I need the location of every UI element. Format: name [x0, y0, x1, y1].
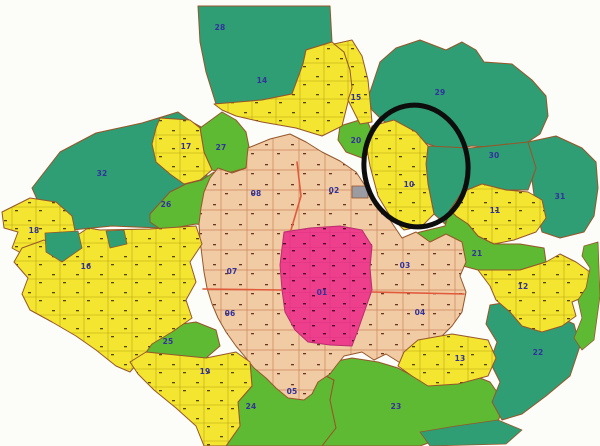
zone-label-11: 11	[490, 206, 501, 215]
zone-label-03: 03	[400, 261, 411, 270]
zone-label-08: 08	[251, 189, 262, 198]
zone-label-32: 32	[97, 169, 108, 178]
zone-label-12: 12	[518, 282, 529, 291]
zone-label-07: 07	[227, 267, 238, 276]
zone-label-14: 14	[257, 76, 268, 85]
zone-label-27: 27	[216, 143, 227, 152]
zone-label-20: 20	[351, 136, 362, 145]
zone-label-23: 23	[391, 402, 402, 411]
zone-label-10: 10	[404, 180, 415, 189]
zone-label-30: 30	[489, 151, 500, 160]
zone-label-17: 17	[181, 142, 192, 151]
zone-label-06: 06	[225, 309, 236, 318]
zone-label-04: 04	[415, 308, 426, 317]
zone-label-21: 21	[472, 249, 483, 258]
road-line	[203, 289, 281, 290]
zoning-map-figure: 3228293130262720252423222101141517181619…	[0, 0, 600, 446]
map-canvas: 3228293130262720252423222101141517181619…	[0, 0, 600, 446]
zone-label-19: 19	[200, 367, 211, 376]
zone-label-15: 15	[351, 93, 362, 102]
zone-01	[280, 226, 372, 346]
zone-label-05: 05	[287, 387, 298, 396]
zone-label-22: 22	[533, 348, 544, 357]
zone-label-31: 31	[555, 192, 566, 201]
zone-label-26: 26	[161, 200, 172, 209]
zone-label-29: 29	[435, 88, 446, 97]
zone-label-25: 25	[163, 337, 174, 346]
zone-label-28: 28	[215, 23, 226, 32]
zone-label-18: 18	[29, 226, 40, 235]
zone-label-24: 24	[246, 402, 257, 411]
zone-label-16: 16	[81, 262, 92, 271]
zone-label-01: 01	[317, 288, 328, 297]
zone-label-13: 13	[455, 354, 466, 363]
zone-label-02: 02	[329, 186, 340, 195]
